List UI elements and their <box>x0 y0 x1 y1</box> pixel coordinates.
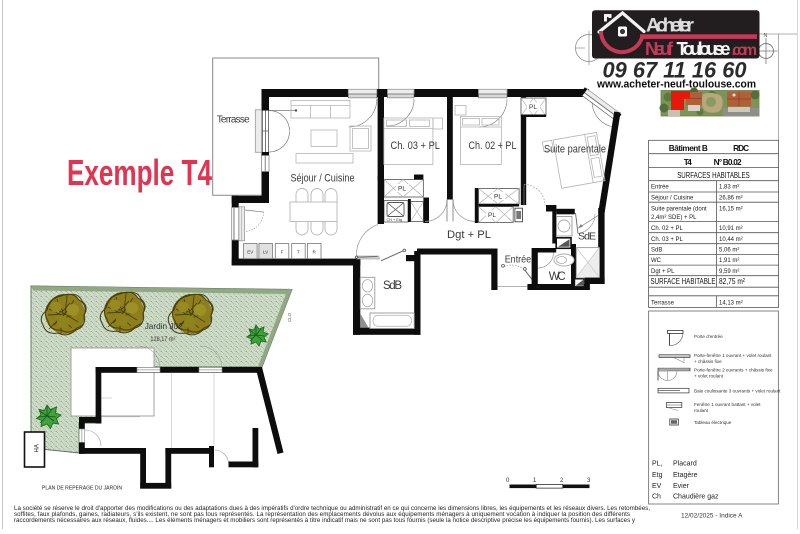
svg-text:Dgt + PL: Dgt + PL <box>651 269 675 275</box>
svg-text:Toulouse: Toulouse <box>677 38 731 59</box>
svg-text:www.acheter-neuf-toulouse.com: www.acheter-neuf-toulouse.com <box>596 79 756 91</box>
svg-text:Porte-fenêtre 2 ouvrants + châ: Porte-fenêtre 2 ouvrants + châssis fixe <box>694 368 773 373</box>
svg-text:Séjour / Cuisine: Séjour / Cuisine <box>651 196 694 202</box>
svg-text:T4: T4 <box>684 158 692 167</box>
svg-text:PL,: PL, <box>652 461 663 468</box>
svg-text:10,91 m²: 10,91 m² <box>719 226 743 232</box>
svg-text:PL: PL <box>494 194 502 201</box>
svg-text:EV: EV <box>247 250 254 255</box>
svg-text:Ch. 03 + PL: Ch. 03 + PL <box>391 140 441 152</box>
svg-text:SdB: SdB <box>383 280 402 292</box>
svg-text:SdE: SdE <box>578 231 596 243</box>
svg-text:16,15 m²: 16,15 m² <box>719 207 743 213</box>
svg-text:Ch: Ch <box>652 494 661 501</box>
svg-text:EV: EV <box>652 483 662 490</box>
svg-text:WC: WC <box>651 258 662 264</box>
svg-text:Terrasse: Terrasse <box>217 115 250 126</box>
svg-text:SdB: SdB <box>651 248 662 254</box>
svg-text:Porte d'entrée: Porte d'entrée <box>694 334 723 339</box>
svg-text:Bâtiment B: Bâtiment B <box>669 144 708 153</box>
svg-text:PLAN DE REPERAGE DU JARDIN: PLAN DE REPERAGE DU JARDIN <box>42 486 122 492</box>
svg-text:RDC: RDC <box>733 144 749 153</box>
svg-text:Fenêtre 1 ouvrant battant + vo: Fenêtre 1 ouvrant battant + volet <box>694 402 761 407</box>
svg-text:1,83 m²: 1,83 m² <box>719 185 739 191</box>
svg-text:Terrasse: Terrasse <box>651 301 675 307</box>
svg-text:Tableau électrique: Tableau électrique <box>694 420 732 425</box>
svg-text:SURFACES HABITABLES: SURFACES HABITABLES <box>677 171 750 180</box>
svg-text:T: T <box>297 250 300 255</box>
svg-text:Baie coulissante 3 ouvrants +: Baie coulissante 3 ouvrants + volet roul… <box>694 388 781 393</box>
svg-text:PL: PL <box>398 186 406 193</box>
svg-text:PL: PL <box>488 212 496 219</box>
svg-text:Neuf: Neuf <box>645 38 674 59</box>
svg-text:Entrée: Entrée <box>651 185 669 191</box>
svg-text:1: 1 <box>533 478 537 484</box>
svg-text:WC: WC <box>549 271 566 283</box>
svg-text:5,06 m²: 5,06 m² <box>719 248 739 254</box>
svg-text:82,75 m²: 82,75 m² <box>719 276 745 286</box>
svg-text:Ch. 02 + PL: Ch. 02 + PL <box>651 226 684 232</box>
svg-text:12/02/2025 - Indice A: 12/02/2025 - Indice A <box>681 513 743 520</box>
svg-text:Dgt + PL: Dgt + PL <box>447 229 491 241</box>
svg-text:F: F <box>281 250 284 255</box>
svg-text:raccordements nécessaires aux: raccordements nécessaires aux réseaux, f… <box>14 517 636 524</box>
svg-text:CLO: CLO <box>287 312 292 322</box>
svg-text:3: 3 <box>587 478 591 484</box>
svg-text:HA: HA <box>35 444 41 452</box>
svg-text:+ volet roulant: + volet roulant <box>694 374 724 379</box>
svg-text:N° B0.02: N° B0.02 <box>714 158 742 167</box>
svg-text:Ch. 03 + PL: Ch. 03 + PL <box>651 237 684 243</box>
svg-text:Jardin J02: Jardin J02 <box>145 321 183 331</box>
svg-text:Acheter: Acheter <box>646 15 694 37</box>
svg-text:1,91 m²: 1,91 m² <box>719 258 739 264</box>
svg-text:Placard: Placard <box>673 461 697 468</box>
svg-text:Etg: Etg <box>652 472 663 479</box>
svg-text:Exemple T4: Exemple T4 <box>67 152 212 193</box>
svg-text:Porte-fenêtre 1 ouvrant + vole: Porte-fenêtre 1 ouvrant + volet roulant <box>694 353 772 358</box>
svg-text:roulant: roulant <box>694 408 709 413</box>
svg-text:SURFACE HABITABLE: SURFACE HABITABLE <box>651 276 716 286</box>
svg-text:2,4m² SDE) + PL: 2,4m² SDE) + PL <box>651 215 697 221</box>
svg-text:0: 0 <box>506 478 510 484</box>
svg-text:Ch. 02 + PL: Ch. 02 + PL <box>469 140 517 152</box>
svg-text:9,59 m²: 9,59 m² <box>719 269 739 275</box>
svg-text:Entrée: Entrée <box>505 255 532 266</box>
svg-text:LV: LV <box>263 250 269 255</box>
svg-text:+ châssis fixe: + châssis fixe <box>694 359 722 364</box>
svg-text:CH + Etg: CH + Etg <box>387 218 403 222</box>
svg-text:Suite parentale (dont: Suite parentale (dont <box>651 207 707 213</box>
svg-text:10,44 m²: 10,44 m² <box>719 237 743 243</box>
svg-text:PL: PL <box>529 104 537 111</box>
svg-text:128,17 m²: 128,17 m² <box>150 336 176 343</box>
svg-text:Chaudière gaz: Chaudière gaz <box>673 494 719 501</box>
svg-text:Suite parentale: Suite parentale <box>544 144 606 156</box>
svg-text:Etagère: Etagère <box>673 472 698 479</box>
svg-text:Evier: Evier <box>673 483 690 490</box>
svg-text:2: 2 <box>560 478 564 484</box>
svg-text:26,86 m²: 26,86 m² <box>719 196 743 202</box>
svg-text:Séjour / Cuisine: Séjour / Cuisine <box>291 173 355 185</box>
svg-text:N: N <box>764 33 768 39</box>
svg-text:14,13 m²: 14,13 m² <box>719 301 743 307</box>
